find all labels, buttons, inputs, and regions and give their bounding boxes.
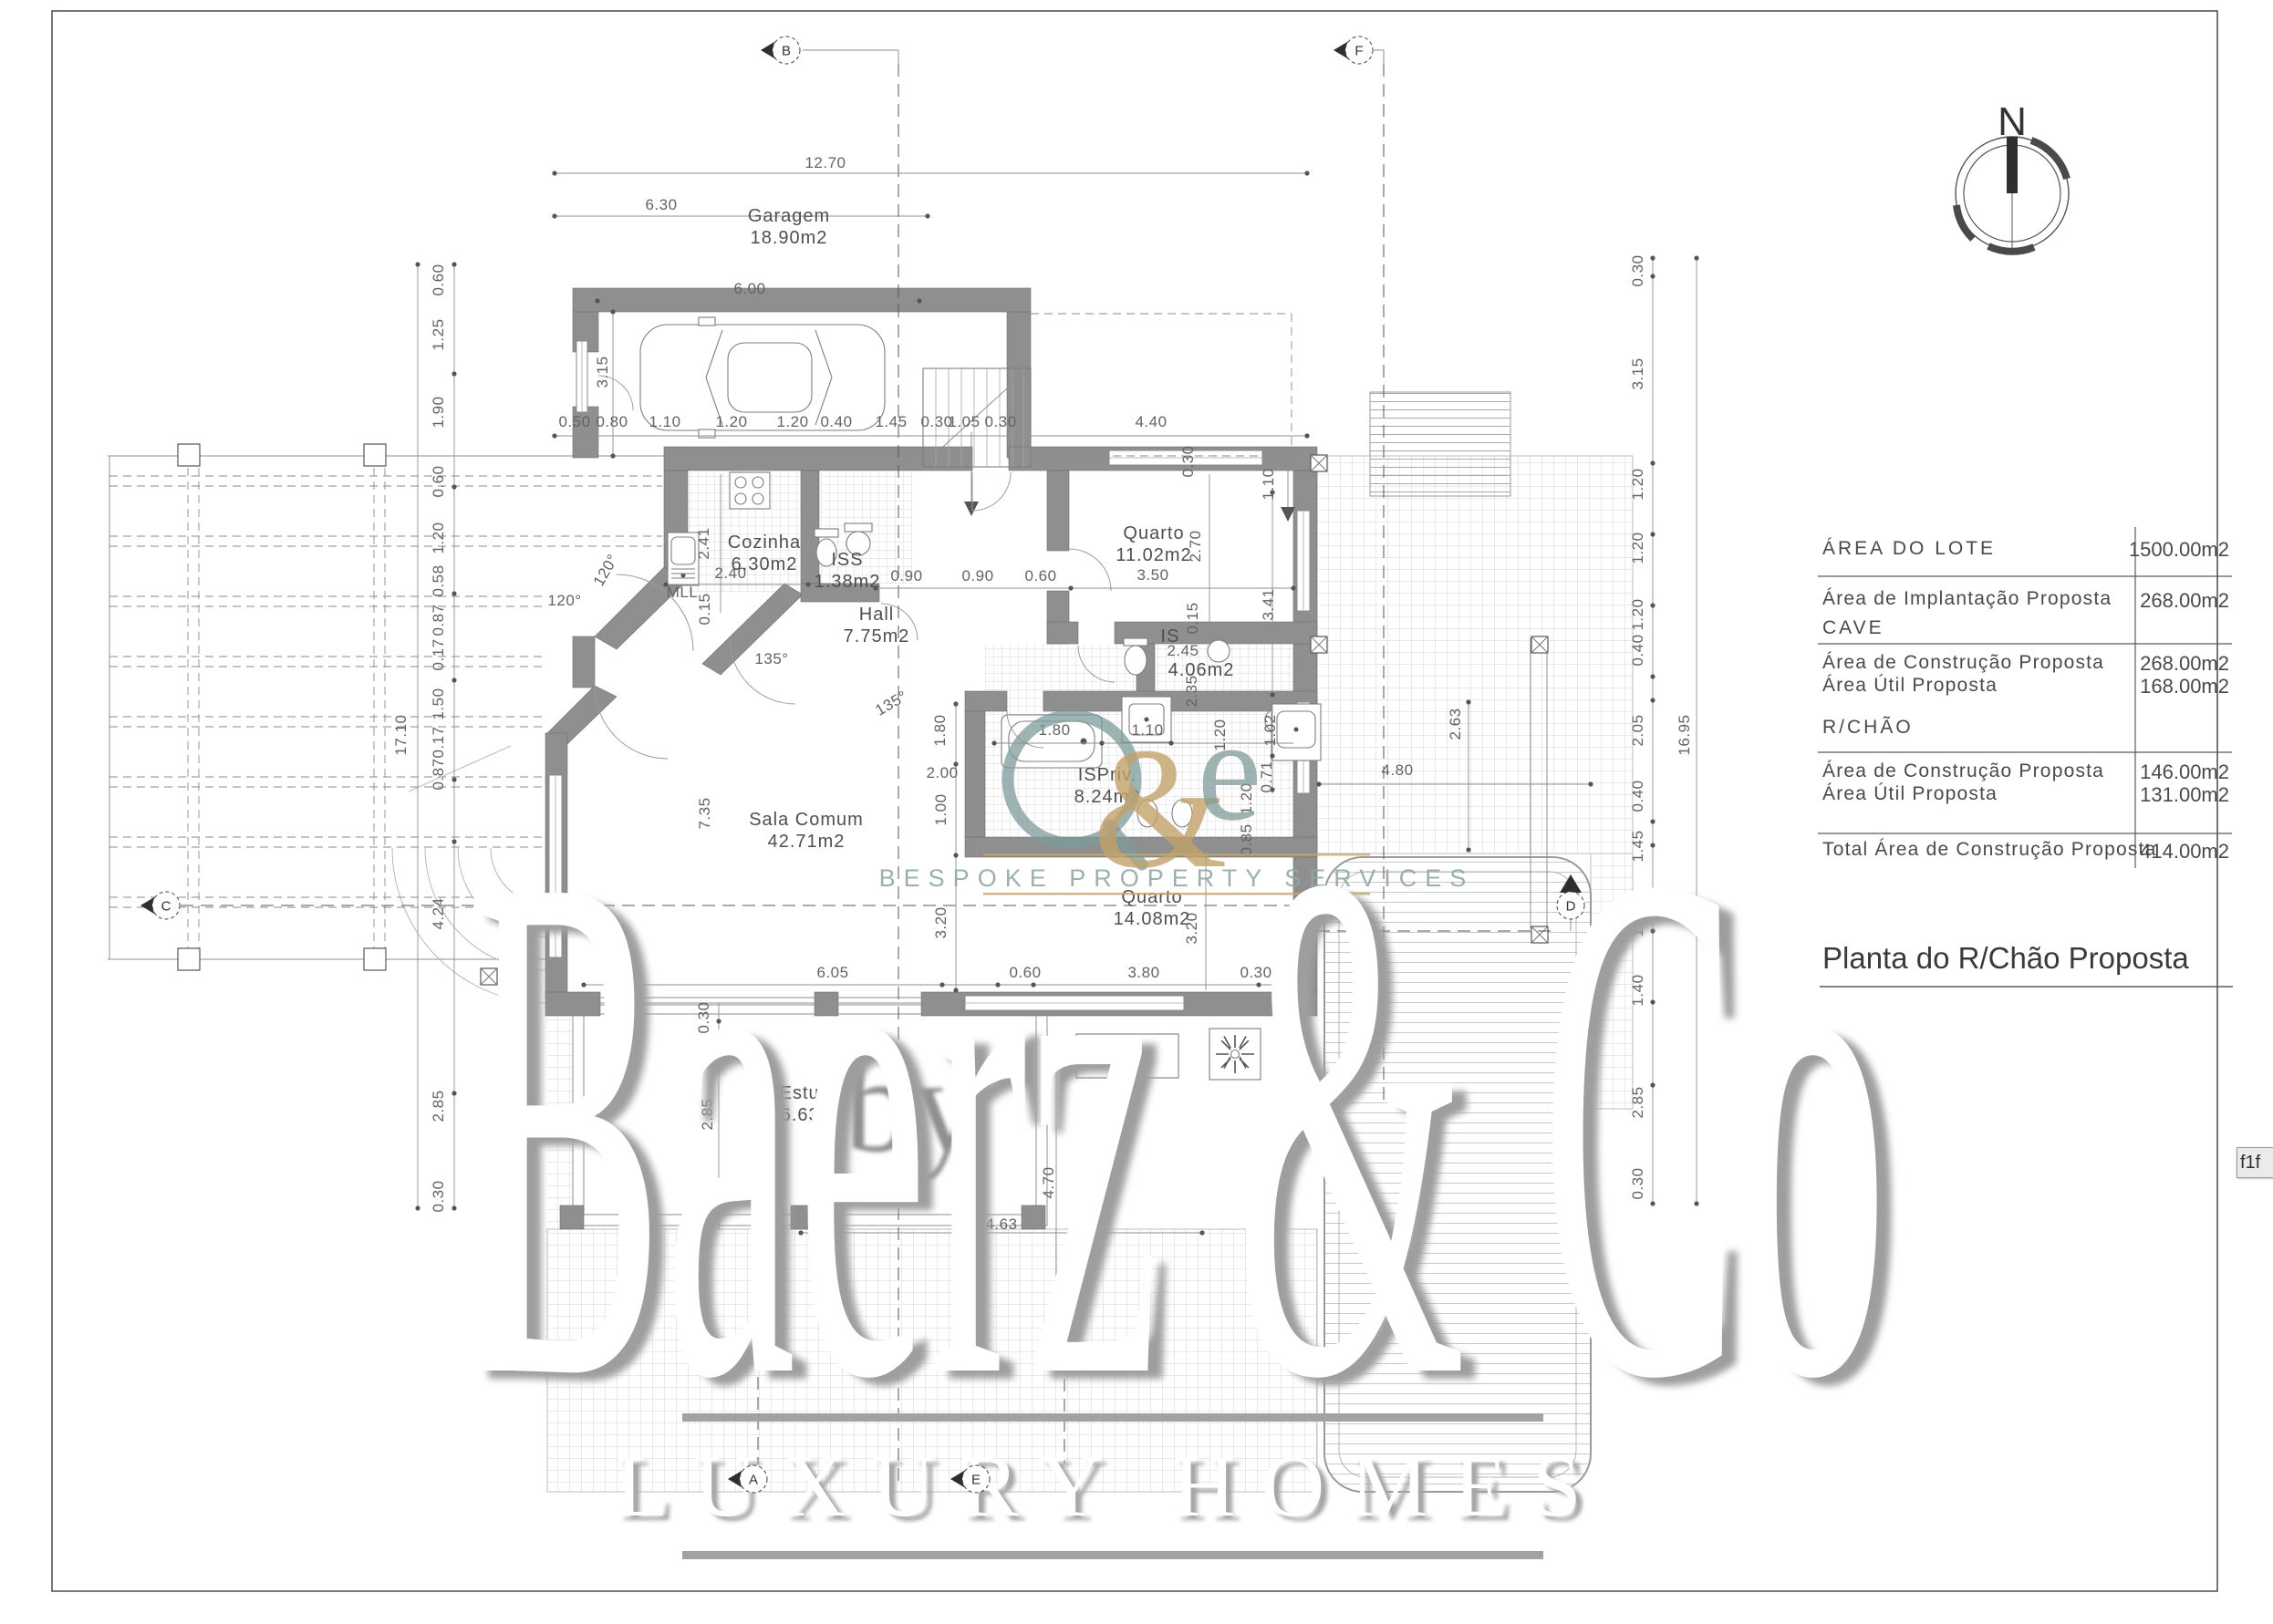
dimension-label: 0.17 — [430, 726, 447, 758]
compass-needle — [2007, 137, 2018, 193]
lot-area-value: 1500.00m2 — [2129, 538, 2229, 561]
room-area: 1.38m2 — [815, 572, 881, 592]
cave-useful-label: Área Útil Proposta — [1822, 675, 1998, 696]
dimension-label: 1.10 — [1260, 468, 1277, 500]
section-marker-b: B — [761, 36, 800, 64]
dimension-label: 1.45 — [875, 413, 907, 430]
room-name: Hall — [859, 605, 894, 625]
floor-plan-drawing: 12.706.306.003.150.500.801.101.201.200.4… — [0, 0, 2273, 1624]
dimension-label: 0.40 — [820, 413, 852, 430]
dimension-label: 1.20 — [430, 522, 447, 553]
dimension-label: 3.15 — [594, 356, 611, 388]
dimension-label: 0.40 — [1629, 634, 1646, 666]
total-label: Total Área de Construção Proposta — [1822, 839, 2156, 860]
dimension-label: 6.30 — [645, 196, 677, 213]
dimension-label: 120° — [590, 551, 622, 589]
dimension-label: 17.10 — [392, 714, 410, 755]
dimension-label: 1.20 — [715, 413, 747, 430]
room-area: 6.30m2 — [732, 554, 798, 574]
stairs — [923, 368, 1295, 522]
ground-useful-label: Área Útil Proposta — [1822, 783, 1998, 804]
room-area: 4.06m2 — [1168, 660, 1235, 680]
dimension-label: 0.60 — [430, 465, 447, 497]
dimension-label: 6.00 — [733, 280, 765, 297]
dimension-label: 1.10 — [649, 413, 680, 430]
dimension-label: 1.20 — [1629, 532, 1646, 564]
exterior-steps — [1370, 392, 1510, 496]
room-name: Quarto — [1123, 523, 1184, 543]
dimension-label: 0.60 — [430, 264, 447, 295]
room-name: Cozinha — [728, 533, 801, 553]
marker-letter: C — [161, 899, 171, 915]
dimension-label: 1.20 — [776, 413, 808, 430]
implantation-label: Área de Implantação Proposta — [1822, 588, 2112, 609]
section-marker-f: F — [1334, 36, 1373, 64]
dimension-label: 0.30 — [984, 413, 1016, 430]
total-value: 414.00m2 — [2140, 840, 2229, 863]
dimension-label: 135° — [754, 650, 788, 667]
dimension-label: 0.30 — [1629, 254, 1646, 286]
dimension-label: 2.41 — [695, 527, 712, 559]
tagline-bar-bottom — [682, 1551, 1543, 1559]
dimension-label: 0.50 — [558, 413, 590, 430]
partial-tooltip: f1f — [2237, 1147, 2273, 1178]
dimension-label: 1.25 — [430, 318, 447, 350]
cave-section-label: CAVE — [1822, 617, 1884, 638]
dimension-label: 0.30 — [1179, 445, 1197, 477]
dimension-label: 0.87 — [430, 758, 447, 790]
dimension-label: 4.40 — [1135, 413, 1167, 430]
marker-letter: E — [971, 1473, 981, 1488]
dimension-label: 1.05 — [948, 413, 980, 430]
dimension-label: 0.90 — [890, 567, 922, 584]
ground-section-label: R/CHÃO — [1822, 716, 1914, 738]
dimension-label: 0.17 — [430, 638, 447, 670]
ground-useful-value: 131.00m2 — [2140, 783, 2229, 806]
dimension-label: 120° — [547, 592, 581, 609]
kitchen-sink-icon — [668, 533, 699, 585]
ground-construction-label: Área de Construção Proposta — [1822, 760, 2104, 781]
marker-letter: B — [782, 44, 791, 59]
dimension-label: 1.90 — [430, 396, 447, 428]
dimension-label: 0.80 — [596, 413, 628, 430]
dimension-label: 0.87 — [430, 604, 447, 636]
room-area: 7.75m2 — [844, 626, 910, 646]
dimension-label: 1.20 — [1629, 598, 1646, 630]
dimension-label: 1.20 — [1629, 468, 1646, 500]
cave-construction-value: 268.00m2 — [2140, 652, 2229, 675]
room-name: Garagem — [748, 206, 830, 226]
dimension-label: 0.60 — [1024, 567, 1056, 584]
plan-sheet: 12.706.306.003.150.500.801.101.201.200.4… — [0, 0, 2273, 1624]
dimension-label: 0.15 — [696, 593, 713, 625]
dimension-label: 3.50 — [1136, 566, 1168, 584]
dimension-label: 4.24 — [430, 897, 447, 929]
room-name: IS — [1161, 626, 1180, 646]
brand-watermark: Baerz & Co — [465, 721, 1888, 1529]
room-area: 11.02m2 — [1116, 545, 1191, 565]
dimension-label: 2.85 — [430, 1090, 447, 1122]
north-compass: N — [1956, 99, 2069, 252]
dimension-label: 3.15 — [1629, 357, 1646, 389]
dimension-label: 0.90 — [961, 567, 993, 584]
page-title: Planta do R/Chão Proposta — [1822, 941, 2189, 975]
cave-useful-value: 168.00m2 — [2140, 675, 2229, 698]
dimension-label: 0.15 — [1184, 602, 1201, 634]
dimension-label: 12.70 — [804, 154, 846, 171]
stove-icon — [730, 472, 770, 509]
dimension-label: 1.50 — [430, 688, 447, 719]
watermarks: & e BESPOKE PROPERTY SERVICES by Baerz &… — [465, 688, 1903, 1559]
dimension-label: 0.30 — [430, 1180, 447, 1212]
lot-area-label: ÁREA DO LOTE — [1822, 538, 1996, 559]
marker-letter: A — [749, 1473, 758, 1488]
dimension-label: 3.41 — [1260, 588, 1277, 620]
room-area: 18.90m2 — [751, 228, 828, 248]
marker-letter: D — [1566, 899, 1576, 915]
cave-construction-label: Área de Construção Proposta — [1822, 652, 2104, 673]
section-marker-c: C — [140, 892, 180, 919]
ground-construction-value: 146.00m2 — [2140, 760, 2229, 783]
implantation-value: 268.00m2 — [2140, 589, 2229, 612]
dimension-label: 135° — [872, 688, 910, 719]
marker-letter: F — [1354, 44, 1363, 59]
dimension-label: 0.58 — [430, 564, 447, 596]
tooltip-text: f1f — [2240, 1153, 2260, 1173]
dimension-label: MLL — [667, 584, 699, 601]
room-name: ISS — [831, 550, 863, 570]
